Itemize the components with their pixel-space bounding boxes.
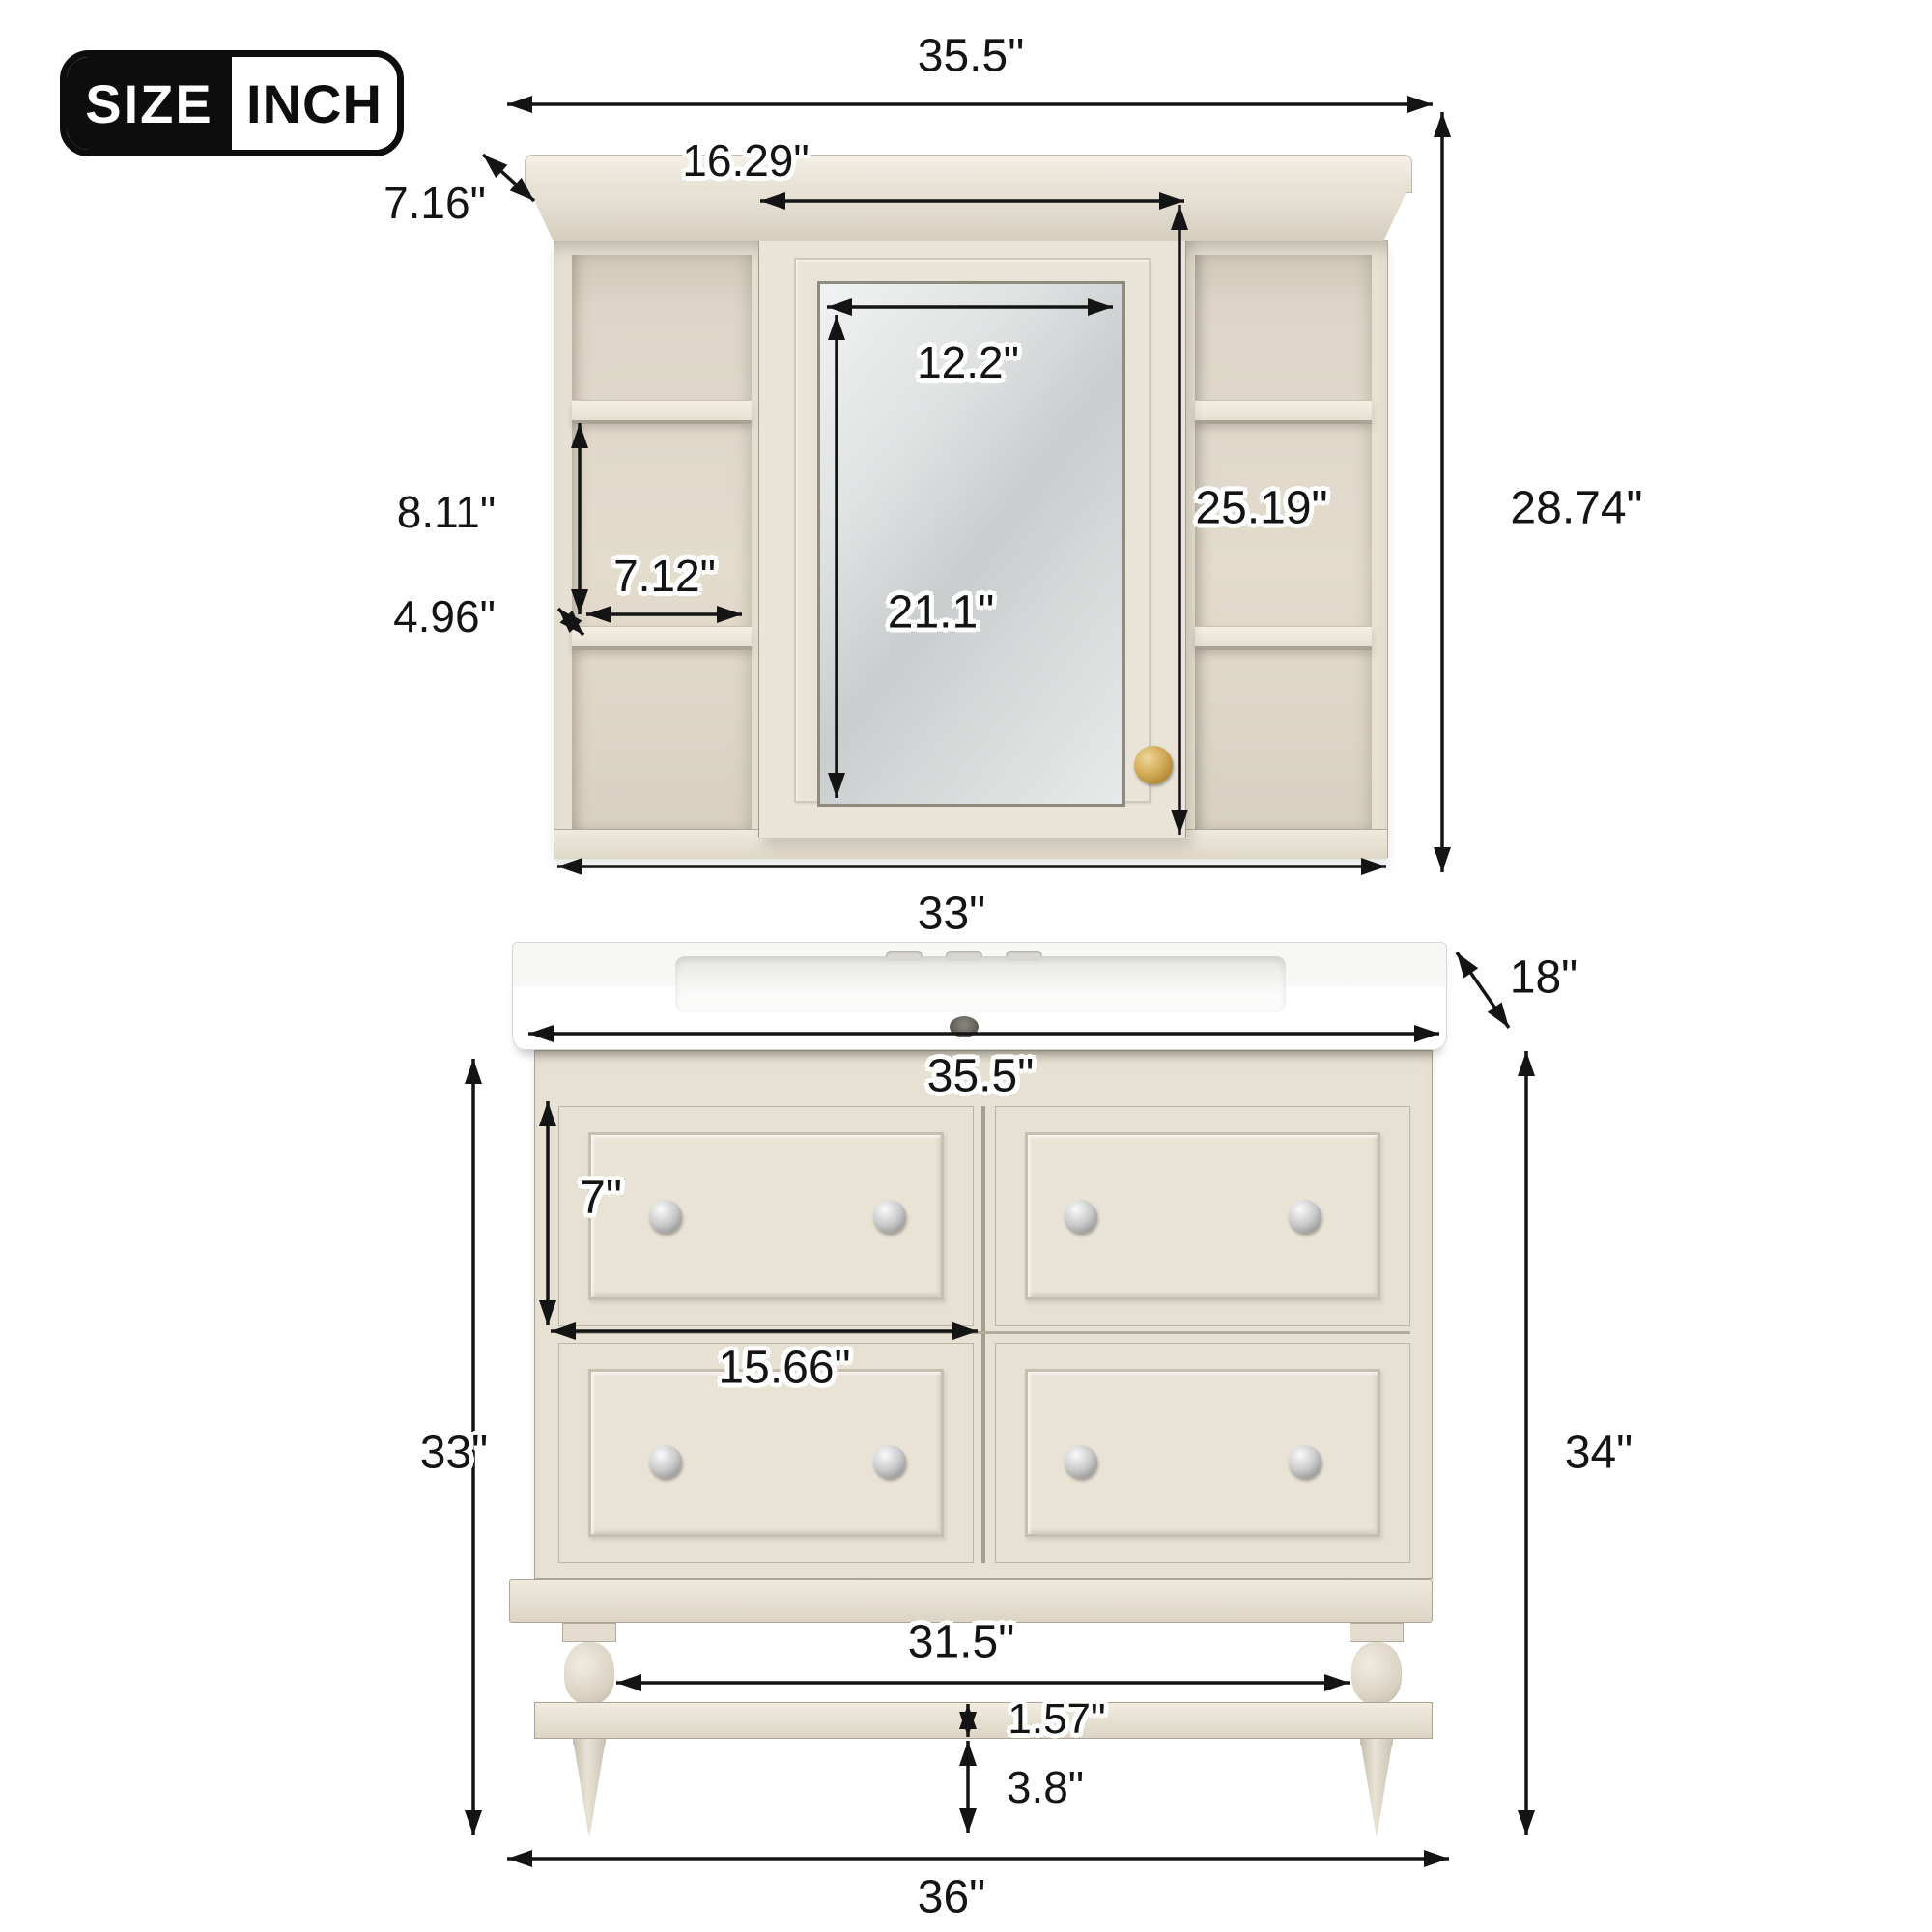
dimension-label-side-shelf-width: 7.12"	[613, 550, 716, 602]
dimension-label-shelf-clearance: 31.5"	[908, 1616, 1014, 1669]
drawer-bottom-right	[995, 1343, 1410, 1563]
dimension-arrow-shelf-clearance	[616, 1674, 1350, 1691]
dimension-arrow-cabinet-height	[1434, 112, 1451, 872]
leg-turned-bulb	[1351, 1642, 1402, 1704]
drawer-knob	[1065, 1200, 1097, 1233]
dimension-label-door-width: 16.29"	[682, 134, 809, 186]
faucet-hole-center	[946, 951, 982, 961]
drawer-knob	[1065, 1445, 1097, 1478]
dimension-arrow-cabinet-bottom-width	[557, 858, 1386, 875]
drawer-knob	[873, 1445, 906, 1478]
cabinet-left-shelf-column	[572, 255, 752, 829]
ceramic-sink-top	[512, 942, 1447, 1050]
leg-cap	[562, 1623, 616, 1642]
dimension-label-side-shelf-depth: 4.96"	[393, 590, 496, 642]
dimension-label-side-shelf-height: 8.11"	[397, 486, 496, 538]
drawer-knob	[1289, 1200, 1321, 1233]
dimension-label-vanity-height-right: 34"	[1565, 1427, 1633, 1480]
leg-turned-bulb	[564, 1642, 614, 1704]
drawer-top-right	[995, 1106, 1410, 1326]
dimension-label-drawer-width: 15.66"	[718, 1342, 850, 1395]
dimension-label-cabinet-top-width: 35.5"	[918, 30, 1024, 83]
dimension-label-vanity-bottom-width: 36"	[918, 1871, 985, 1924]
dimension-arrow-vanity-height-right	[1518, 1051, 1535, 1835]
drawer-center-divider	[981, 1106, 985, 1563]
faucet-hole-left	[886, 951, 923, 961]
sink-overflow-hole	[950, 1016, 979, 1037]
dimension-label-shelf-thickness: 1.57"	[1008, 1695, 1105, 1744]
leg-tapered-foot	[571, 1741, 608, 1837]
dimension-arrow-cabinet-top-width	[507, 96, 1433, 113]
drawer-row-gap	[558, 1331, 1410, 1334]
cabinet-crown-cove	[530, 192, 1406, 241]
faucet-hole-right	[1006, 951, 1042, 961]
dimension-label-vanity-height-left: 33"	[420, 1427, 488, 1480]
leg-cap	[1350, 1623, 1404, 1642]
dimension-label-drawer-height: 7"	[580, 1172, 622, 1225]
size-unit-badge: SIZE INCH	[60, 50, 404, 156]
drawer-knob	[1289, 1445, 1321, 1478]
cabinet-right-shelf-column	[1195, 255, 1372, 829]
dimension-label-sink-depth: 18"	[1510, 952, 1577, 1005]
cabinet-right-shelf-1	[1195, 400, 1372, 424]
drawer-knob	[873, 1200, 906, 1233]
cabinet-right-shelf-2	[1195, 626, 1372, 650]
vanity-open-shelf	[534, 1702, 1433, 1739]
dimension-label-cabinet-bottom-width: 33"	[918, 888, 985, 941]
dimension-label-cabinet-depth: 7.16"	[384, 177, 486, 229]
dimension-label-vanity-top-width: 35.5"	[927, 1050, 1034, 1103]
dimension-arrow-vanity-bottom-width	[507, 1850, 1449, 1867]
dimension-label-mirror-height: 21.1"	[888, 586, 994, 639]
gold-door-knob	[1134, 746, 1173, 784]
dimension-label-door-height: 25.19"	[1195, 482, 1327, 535]
dimension-label-foot-height: 3.8"	[1007, 1761, 1084, 1813]
cabinet-left-shelf-2	[572, 626, 752, 650]
cabinet-left-shelf-1	[572, 400, 752, 424]
product-dimension-diagram: SIZE INCH	[0, 0, 1932, 1932]
drawer-knob	[649, 1445, 682, 1478]
mirror-cabinet-door	[758, 222, 1186, 838]
drawer-knob	[649, 1200, 682, 1233]
leg-tapered-foot	[1358, 1741, 1395, 1837]
cabinet-crown-top	[525, 155, 1412, 193]
badge-inch-label: INCH	[232, 57, 397, 150]
dimension-arrow-foot-height	[959, 1741, 977, 1833]
badge-size-label: SIZE	[67, 57, 232, 150]
sink-basin	[675, 956, 1286, 1012]
dimension-arrow-sink-depth	[1457, 952, 1509, 1028]
dimension-label-cabinet-height: 28.74"	[1510, 482, 1642, 535]
dimension-label-mirror-width: 12.2"	[917, 336, 1019, 388]
